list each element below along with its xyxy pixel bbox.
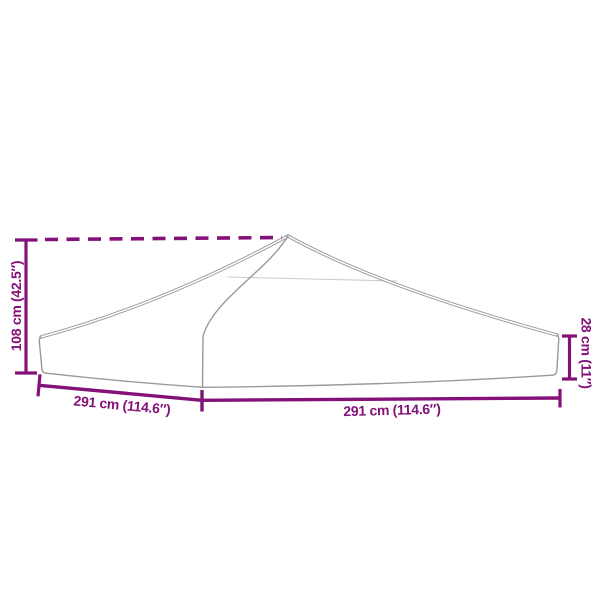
canopy-dimension-diagram: 108 cm (42.5″) 28 cm (11″) 291 cm (114.6… <box>0 0 600 600</box>
width-dimension-line <box>202 398 560 400</box>
width-dimension-label: 291 cm (114.6″) <box>343 401 441 420</box>
product-dimension-image: 108 cm (42.5″) 28 cm (11″) 291 cm (114.6… <box>0 0 600 600</box>
canopy-drawing <box>39 236 558 387</box>
right-roof-edge <box>288 236 557 335</box>
front-right-hem <box>203 375 553 387</box>
valance-dimension-label: 28 cm (11″) <box>579 317 595 388</box>
left-roof-edge <box>41 236 288 337</box>
right-roof-edge-highlight <box>288 236 557 335</box>
peak-projection-dashed-line <box>45 238 282 240</box>
height-dimension-label: 108 cm (42.5″) <box>8 261 24 351</box>
left-valance-edge <box>39 337 46 373</box>
valance-dimension: 28 cm (11″) <box>562 317 595 388</box>
width-dimension: 291 cm (114.6″) <box>202 389 560 419</box>
depth-dimension-left-cap <box>38 374 40 396</box>
height-dimension: 108 cm (42.5″) <box>8 238 282 374</box>
left-roof-edge-highlight <box>41 236 288 337</box>
right-valance-edge <box>553 335 559 375</box>
front-left-hem <box>46 373 203 387</box>
back-hem-line <box>228 277 397 281</box>
